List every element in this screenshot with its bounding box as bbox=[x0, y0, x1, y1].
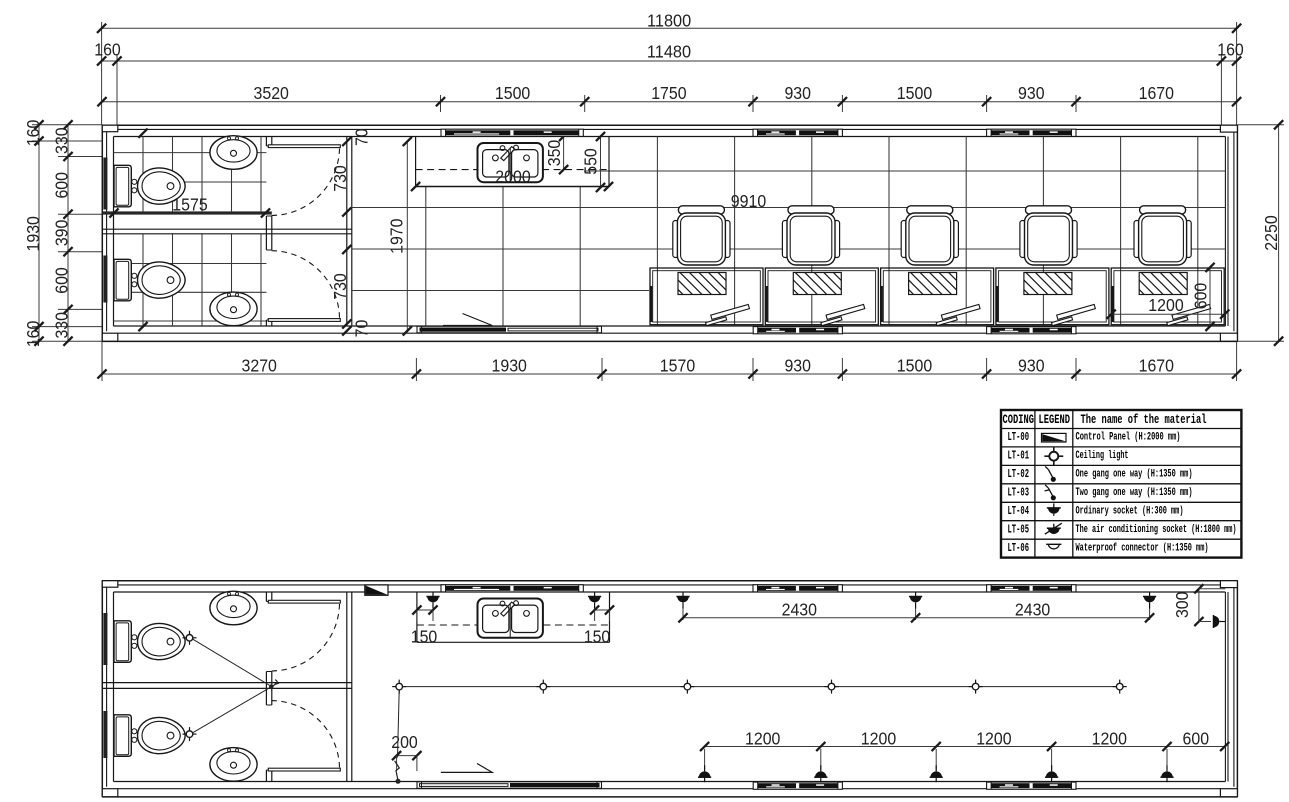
svg-text:1200: 1200 bbox=[1092, 728, 1127, 748]
svg-text:1670: 1670 bbox=[1139, 356, 1174, 376]
svg-text:330: 330 bbox=[52, 312, 72, 339]
svg-text:1500: 1500 bbox=[897, 83, 932, 103]
svg-text:Ceiling light: Ceiling light bbox=[1076, 450, 1129, 462]
svg-text:11480: 11480 bbox=[647, 42, 691, 62]
svg-text:11800: 11800 bbox=[647, 11, 691, 31]
svg-text:1500: 1500 bbox=[495, 83, 530, 103]
svg-text:1200: 1200 bbox=[976, 728, 1011, 748]
svg-text:1200: 1200 bbox=[861, 728, 896, 748]
svg-text:The name of the material: The name of the material bbox=[1081, 413, 1207, 427]
svg-text:550: 550 bbox=[581, 148, 601, 175]
svg-text:730: 730 bbox=[330, 273, 350, 300]
svg-text:160: 160 bbox=[23, 120, 43, 147]
svg-text:600: 600 bbox=[52, 172, 72, 199]
svg-text:LEGEND: LEGEND bbox=[1039, 413, 1071, 427]
svg-text:Ordinary socket (H:300 mm): Ordinary socket (H:300 mm) bbox=[1076, 506, 1184, 518]
svg-text:300: 300 bbox=[1172, 592, 1192, 619]
svg-text:600: 600 bbox=[1183, 728, 1210, 748]
svg-text:600: 600 bbox=[1191, 283, 1211, 310]
svg-text:LT-05: LT-05 bbox=[1008, 524, 1030, 537]
svg-text:160: 160 bbox=[23, 321, 43, 348]
svg-text:LT-00: LT-00 bbox=[1008, 431, 1030, 444]
svg-text:390: 390 bbox=[52, 220, 72, 247]
svg-text:One gang one way (H:1350 mm): One gang one way (H:1350 mm) bbox=[1076, 469, 1193, 481]
svg-text:1200: 1200 bbox=[745, 728, 780, 748]
svg-text:1500: 1500 bbox=[897, 356, 932, 376]
svg-text:1930: 1930 bbox=[23, 216, 43, 251]
svg-text:LT-01: LT-01 bbox=[1008, 450, 1030, 463]
svg-text:930: 930 bbox=[1018, 356, 1045, 376]
svg-text:2250: 2250 bbox=[1261, 215, 1281, 250]
svg-text:LT-04: LT-04 bbox=[1008, 505, 1030, 518]
svg-text:3520: 3520 bbox=[254, 83, 289, 103]
svg-text:1570: 1570 bbox=[660, 356, 695, 376]
svg-text:2430: 2430 bbox=[782, 599, 817, 619]
svg-text:2000: 2000 bbox=[495, 167, 530, 187]
svg-text:150: 150 bbox=[411, 626, 438, 646]
svg-text:930: 930 bbox=[784, 83, 811, 103]
svg-text:Control Panel (H:2000 mm): Control Panel (H:2000 mm) bbox=[1076, 432, 1181, 444]
svg-text:350: 350 bbox=[544, 140, 564, 167]
svg-text:930: 930 bbox=[1018, 83, 1045, 103]
svg-text:9910: 9910 bbox=[731, 191, 766, 211]
svg-text:CODING: CODING bbox=[1003, 413, 1035, 427]
svg-text:600: 600 bbox=[52, 267, 72, 294]
svg-text:3270: 3270 bbox=[242, 356, 277, 376]
svg-text:2430: 2430 bbox=[1015, 599, 1050, 619]
svg-text:1750: 1750 bbox=[651, 83, 686, 103]
svg-text:LT-06: LT-06 bbox=[1008, 542, 1030, 555]
svg-text:330: 330 bbox=[52, 127, 72, 154]
svg-text:1200: 1200 bbox=[1148, 295, 1183, 315]
svg-text:200: 200 bbox=[391, 732, 418, 752]
svg-text:1930: 1930 bbox=[492, 356, 527, 376]
svg-text:150: 150 bbox=[584, 626, 611, 646]
svg-text:70: 70 bbox=[352, 128, 372, 146]
svg-text:LT-02: LT-02 bbox=[1008, 468, 1030, 481]
svg-text:160: 160 bbox=[94, 40, 121, 60]
svg-text:160: 160 bbox=[1217, 40, 1244, 60]
svg-text:Waterproof connector (H:1350 m: Waterproof connector (H:1350 mm) bbox=[1076, 542, 1209, 554]
svg-text:930: 930 bbox=[784, 356, 811, 376]
svg-text:The air conditioning socket (H: The air conditioning socket (H:1800 mm) bbox=[1076, 524, 1237, 536]
svg-text:LT-03: LT-03 bbox=[1008, 487, 1030, 500]
svg-text:1670: 1670 bbox=[1139, 83, 1174, 103]
svg-text:Two gang one way (H:1350 mm): Two gang one way (H:1350 mm) bbox=[1076, 487, 1193, 499]
svg-text:70: 70 bbox=[352, 320, 372, 338]
svg-text:730: 730 bbox=[330, 165, 350, 192]
